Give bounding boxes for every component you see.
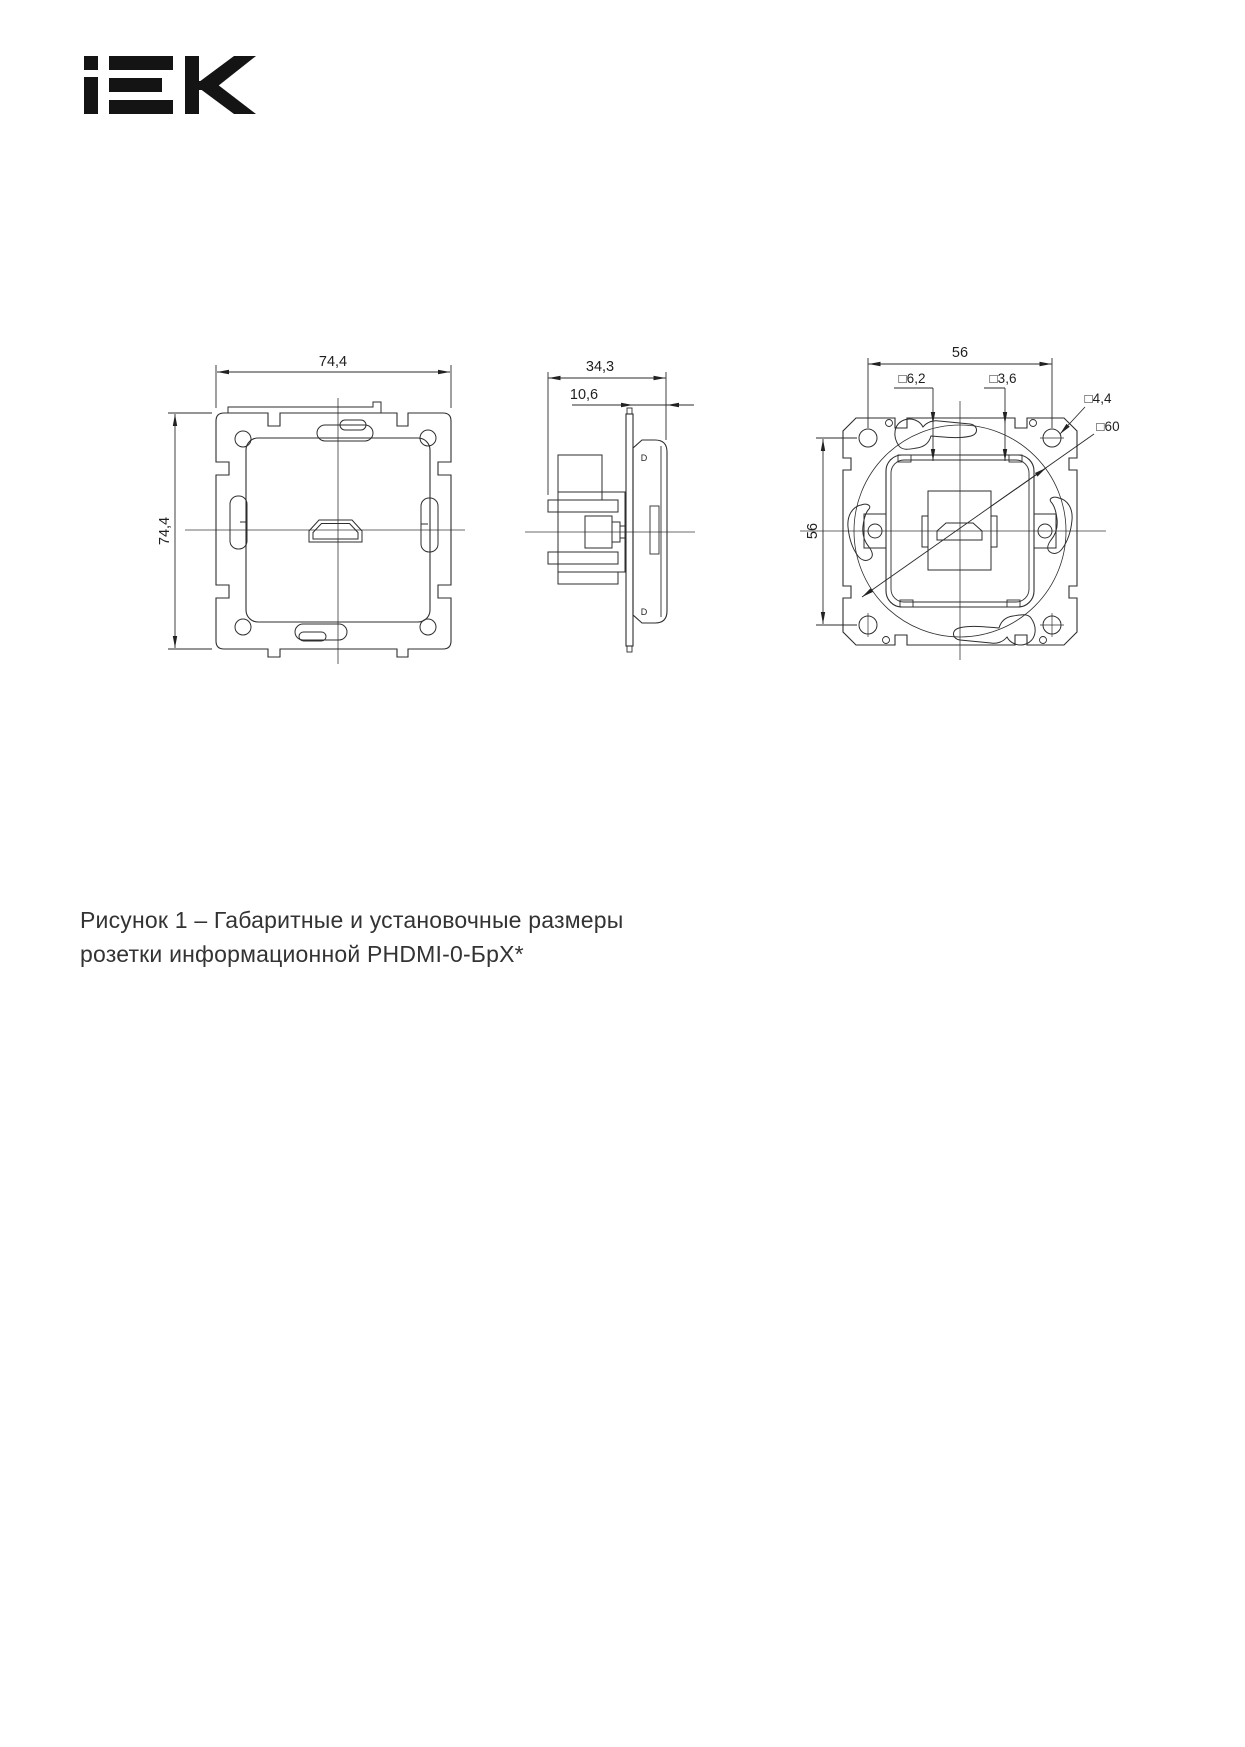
front-width-dim-label: 74,4 bbox=[319, 354, 347, 370]
rear-hdmi-module bbox=[922, 491, 997, 570]
iek-logo-glyphs bbox=[84, 56, 256, 114]
figure-caption: Рисунок 1 – Габаритные и установочные ра… bbox=[80, 903, 700, 971]
rear-view: 56 56 □6,2 □3,6 □4,4 □60 bbox=[800, 345, 1120, 660]
side-detail-mark-bottom: D bbox=[641, 607, 648, 617]
side-depth-dim-label: 34,3 bbox=[586, 359, 614, 375]
side-face-plate bbox=[633, 440, 667, 623]
side-support-plate bbox=[626, 408, 633, 652]
rear-strap-small-holes bbox=[883, 420, 1047, 644]
front-plate-flange bbox=[228, 402, 381, 413]
rear-hole-label: □4,4 bbox=[1085, 391, 1112, 406]
front-height-dim-label: 74,4 bbox=[157, 517, 173, 545]
figure-caption-line2: розетки информационной PHDMI-0-БрХ* bbox=[80, 937, 700, 971]
hdmi-connector bbox=[309, 520, 362, 542]
side-front-depth-dim-label: 10,6 bbox=[570, 387, 598, 403]
front-view-dimensions bbox=[168, 365, 451, 649]
rear-view-leaders bbox=[862, 388, 1094, 597]
figure-1-drawings: 74,4 74,4 bbox=[100, 290, 1140, 680]
front-view: 74,4 74,4 bbox=[157, 354, 465, 664]
front-claw-shapes bbox=[230, 420, 438, 641]
figure-caption-line1: Рисунок 1 – Габаритные и установочные ра… bbox=[80, 903, 700, 937]
side-detail-mark-top: D bbox=[641, 453, 648, 463]
page: 74,4 74,4 bbox=[0, 0, 1245, 1747]
iek-logo bbox=[84, 56, 256, 116]
rear-clip-slot-label: □3,6 bbox=[990, 371, 1017, 386]
rear-claw-slot-label: □6,2 bbox=[899, 371, 926, 386]
rear-width-dim-label: 56 bbox=[952, 345, 968, 361]
rear-height-dim-label: 56 bbox=[805, 523, 821, 539]
side-mechanism bbox=[548, 455, 626, 584]
side-view: D D 34,3 10,6 bbox=[525, 359, 695, 652]
rear-box-square-label: □60 bbox=[1096, 419, 1119, 434]
front-corner-holes bbox=[235, 430, 436, 635]
